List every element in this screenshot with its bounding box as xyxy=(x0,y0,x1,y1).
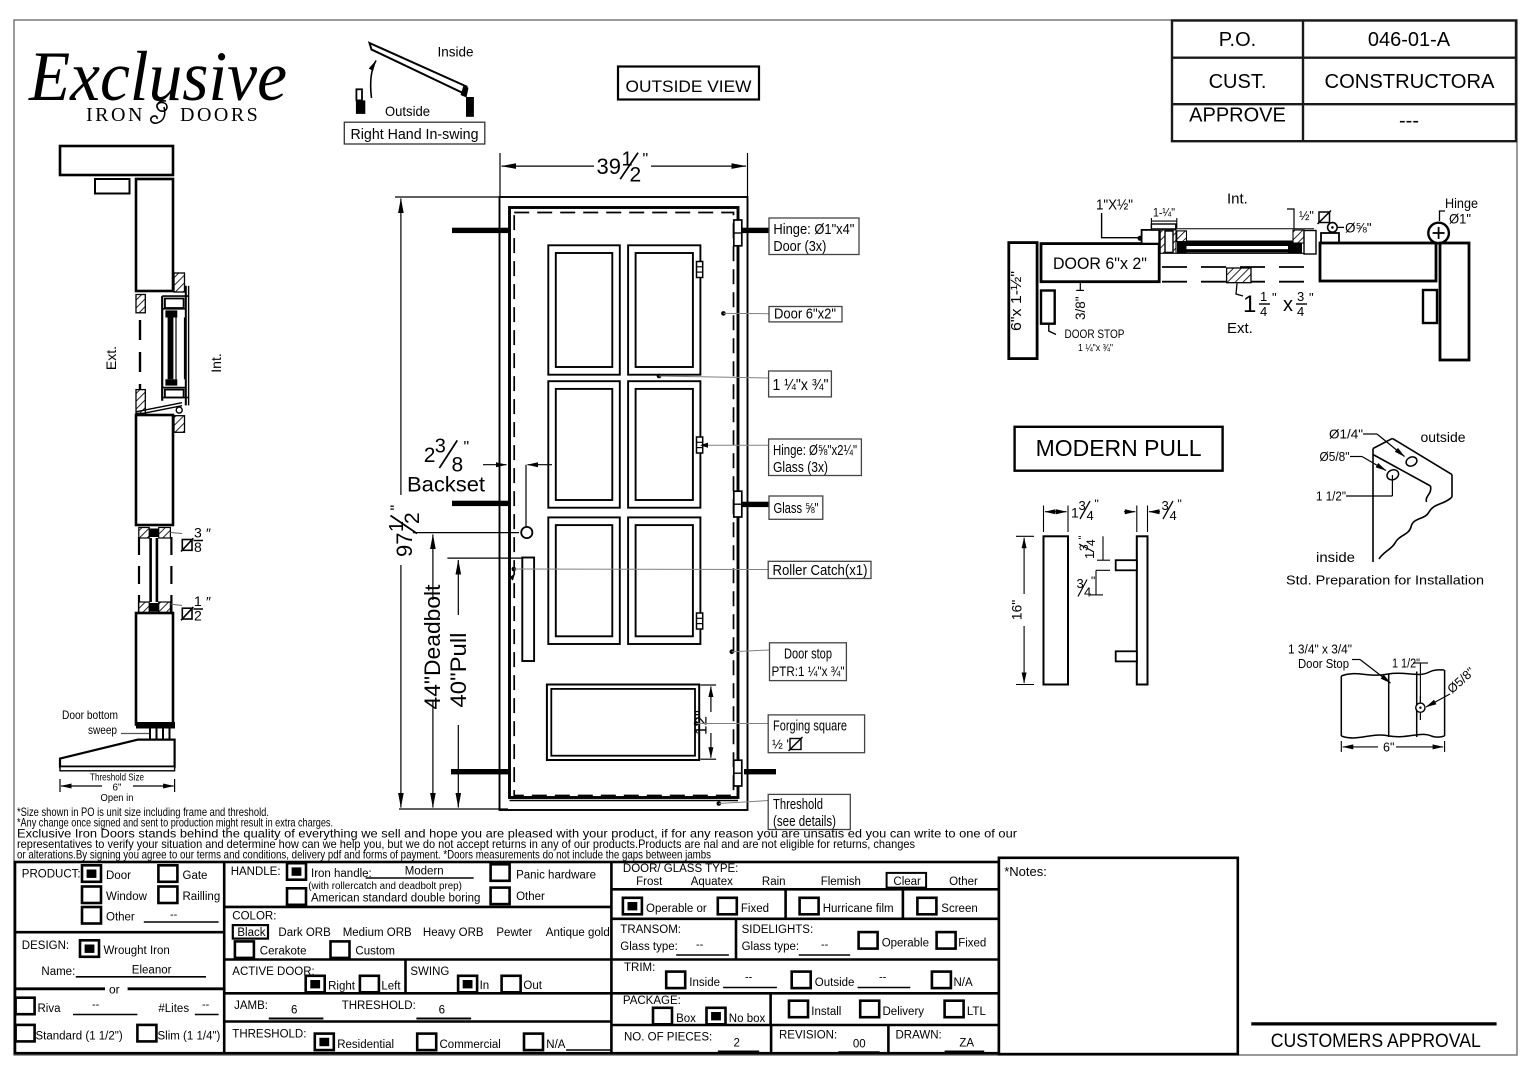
svg-text:6"x 1-½": 6"x 1-½" xyxy=(1008,271,1025,331)
svg-text:1 1/2": 1 1/2" xyxy=(1316,489,1346,504)
svg-text:1: 1 xyxy=(1243,291,1256,318)
svg-text:": " xyxy=(643,151,649,168)
svg-text:inside: inside xyxy=(1316,549,1355,565)
svg-text:97: 97 xyxy=(392,533,417,557)
svg-text:PTR:1 ¼"x ¾": PTR:1 ¼"x ¾" xyxy=(772,663,845,679)
svg-text:Heavy ORB: Heavy ORB xyxy=(423,927,484,939)
svg-text:DOORS: DOORS xyxy=(180,104,260,126)
svg-text:2: 2 xyxy=(401,512,424,524)
svg-text:1: 1 xyxy=(1260,289,1267,304)
svg-text:1: 1 xyxy=(1082,552,1097,559)
svg-text:": " xyxy=(389,505,406,511)
svg-text:8: 8 xyxy=(194,539,202,555)
svg-text:CUST.: CUST. xyxy=(1209,71,1267,93)
svg-text:--: -- xyxy=(170,909,178,921)
svg-text:NO. OF PIECES:: NO. OF PIECES: xyxy=(624,1031,712,1043)
svg-text:39: 39 xyxy=(597,154,621,179)
svg-text:APPROVE: APPROVE xyxy=(1189,105,1286,127)
svg-text:3: 3 xyxy=(435,436,446,458)
svg-text:6: 6 xyxy=(439,1005,445,1017)
svg-text:Screen: Screen xyxy=(941,903,977,915)
svg-text:Forging square: Forging square xyxy=(773,718,847,735)
svg-text:THRESHOLD:: THRESHOLD: xyxy=(232,1029,306,1041)
svg-text:or alterations.By signing you: or alterations.By signing you agree to o… xyxy=(17,848,711,862)
svg-text:Hurricane film: Hurricane film xyxy=(823,903,894,915)
svg-text:3/8": 3/8" xyxy=(1073,296,1088,320)
svg-text:2: 2 xyxy=(734,1038,740,1050)
svg-text:1"X½": 1"X½" xyxy=(1096,198,1133,214)
svg-text:Int.: Int. xyxy=(208,353,224,372)
svg-text:REVISION:: REVISION: xyxy=(779,1029,837,1041)
svg-text:Door 6"x2": Door 6"x2" xyxy=(774,306,836,323)
svg-text:or: or xyxy=(109,982,120,996)
svg-text:In: In xyxy=(480,980,490,992)
svg-text:Residential: Residential xyxy=(337,1039,394,1051)
svg-text:": " xyxy=(1178,497,1182,511)
svg-text:THRESHOLD:: THRESHOLD: xyxy=(342,1000,416,1012)
svg-text:Glass (3x): Glass (3x) xyxy=(773,459,828,476)
svg-text:IRON: IRON xyxy=(86,104,145,126)
svg-text:Glass ⅝": Glass ⅝" xyxy=(774,500,819,517)
svg-text:Outside: Outside xyxy=(385,103,430,119)
svg-text:″: ″ xyxy=(206,594,211,610)
svg-text:--: -- xyxy=(821,939,829,951)
svg-text:00: 00 xyxy=(853,1038,866,1050)
svg-text:Black: Black xyxy=(237,927,265,939)
svg-text:": " xyxy=(1309,290,1314,305)
svg-text:JAMB:: JAMB: xyxy=(234,1000,268,1012)
svg-text:PACKAGE:: PACKAGE: xyxy=(623,995,681,1007)
svg-text:Riva: Riva xyxy=(38,1003,62,1015)
svg-text:Panic hardware: Panic hardware xyxy=(516,869,596,881)
svg-text:Ø5/8": Ø5/8" xyxy=(1320,449,1350,464)
svg-text:Delivery: Delivery xyxy=(883,1006,925,1018)
svg-text:Flemish: Flemish xyxy=(821,876,861,888)
svg-text:--: -- xyxy=(879,972,887,984)
svg-text:ZA: ZA xyxy=(959,1038,974,1050)
svg-text:Operable: Operable xyxy=(882,937,929,949)
svg-text:Hinge: Hinge xyxy=(1445,195,1478,211)
svg-text:Backset: Backset xyxy=(407,473,485,497)
svg-text:DOOR/ GLASS TYPE:: DOOR/ GLASS TYPE: xyxy=(623,863,738,875)
svg-text:Frost: Frost xyxy=(636,876,663,888)
svg-text:Custom: Custom xyxy=(355,946,395,958)
svg-text:Other: Other xyxy=(949,876,978,888)
svg-text:Pewter: Pewter xyxy=(496,927,532,939)
svg-text:CUSTOMERS APPROVAL: CUSTOMERS APPROVAL xyxy=(1271,1031,1481,1052)
svg-text:TRANSOM:: TRANSOM: xyxy=(620,924,681,936)
svg-text:Ext.: Ext. xyxy=(1227,320,1253,337)
svg-text:Rain: Rain xyxy=(762,876,786,888)
svg-text:Other: Other xyxy=(106,912,135,924)
svg-text:½": ½" xyxy=(1299,209,1314,223)
svg-text:1 3/4" x 3/4": 1 3/4" x 3/4" xyxy=(1288,642,1352,657)
svg-text:DOOR 6"x 2": DOOR 6"x 2" xyxy=(1053,255,1147,273)
svg-text:046-01-A: 046-01-A xyxy=(1368,29,1451,51)
svg-text:DRAWN:: DRAWN: xyxy=(896,1029,942,1041)
svg-text:Commercial: Commercial xyxy=(440,1039,501,1051)
svg-text:Window: Window xyxy=(106,891,148,903)
svg-text:--: -- xyxy=(92,999,100,1011)
svg-text:Clear: Clear xyxy=(893,876,921,888)
svg-text:Other: Other xyxy=(516,891,545,903)
svg-text:Ø1/4": Ø1/4" xyxy=(1329,427,1363,442)
svg-text:Operable or: Operable or xyxy=(646,903,707,915)
svg-text:Hinge: Ø1"x4": Hinge: Ø1"x4" xyxy=(773,221,854,238)
svg-text:#Lites: #Lites xyxy=(158,1003,189,1015)
svg-text:6: 6 xyxy=(291,1005,297,1017)
svg-text:″: ″ xyxy=(206,525,211,541)
svg-text:2: 2 xyxy=(630,164,642,187)
svg-text:COLOR:: COLOR: xyxy=(232,911,276,923)
svg-text:Glass type:: Glass type: xyxy=(742,941,800,953)
svg-text:4: 4 xyxy=(1087,508,1094,523)
svg-text:Door: Door xyxy=(106,870,131,882)
svg-text:1 ¼"x ¾": 1 ¼"x ¾" xyxy=(773,377,829,394)
svg-text:": " xyxy=(1091,574,1095,588)
svg-text:TRIM:: TRIM: xyxy=(624,962,655,974)
svg-text:(with rollercatch and deadbolt: (with rollercatch and deadbolt prep) xyxy=(308,881,462,892)
svg-text:Threshold: Threshold xyxy=(773,796,823,813)
svg-text:Box: Box xyxy=(676,1013,696,1025)
svg-text:--: -- xyxy=(745,972,753,984)
svg-text:Gate: Gate xyxy=(183,870,208,882)
svg-text:Aquatex: Aquatex xyxy=(691,876,733,888)
svg-text:Out: Out xyxy=(523,980,542,992)
svg-text:Door Stop: Door Stop xyxy=(1298,656,1349,671)
svg-text:HANDLE:: HANDLE: xyxy=(231,866,281,878)
svg-text:": " xyxy=(464,439,470,456)
svg-text:Install: Install xyxy=(811,1006,841,1018)
svg-text:Outside: Outside xyxy=(815,977,855,989)
svg-text:Roller Catch(x1): Roller Catch(x1) xyxy=(773,562,868,579)
svg-text:Standard (1 1/2"): Standard (1 1/2") xyxy=(36,1030,123,1042)
svg-text:N/A: N/A xyxy=(954,977,974,989)
svg-text:Hinge: Ø⅝"x2¼": Hinge: Ø⅝"x2¼" xyxy=(773,442,857,459)
svg-text:sweep: sweep xyxy=(88,723,117,737)
svg-text:N/A: N/A xyxy=(546,1039,566,1051)
svg-text:1 ¼"x ¾": 1 ¼"x ¾" xyxy=(1078,342,1113,354)
svg-text:Inside: Inside xyxy=(438,44,474,60)
svg-text:16": 16" xyxy=(1009,600,1025,621)
svg-text:Right Hand In-swing: Right Hand In-swing xyxy=(351,126,479,143)
svg-text:Ø1": Ø1" xyxy=(1449,211,1471,227)
svg-text:---: --- xyxy=(1399,110,1419,132)
svg-text:--: -- xyxy=(696,939,704,951)
svg-text:Left: Left xyxy=(381,981,401,993)
svg-text:Antique gold: Antique gold xyxy=(546,927,610,939)
svg-text:Wrought Iron: Wrought Iron xyxy=(104,945,170,957)
svg-text:Fixed: Fixed xyxy=(958,937,986,949)
svg-text:American standard double borin: American standard double boring xyxy=(311,893,480,905)
svg-text:Door bottom: Door bottom xyxy=(62,708,118,722)
svg-text:1-¼": 1-¼" xyxy=(1153,206,1175,220)
svg-text:Int.: Int. xyxy=(1227,191,1248,208)
svg-text:Eleanor: Eleanor xyxy=(132,965,172,977)
svg-text:Cerakote: Cerakote xyxy=(260,946,307,958)
svg-text:ACTIVE DOOR:: ACTIVE DOOR: xyxy=(232,966,314,978)
svg-text:3: 3 xyxy=(1297,289,1304,304)
svg-text:SWING: SWING xyxy=(410,966,449,978)
svg-text:Medium ORB: Medium ORB xyxy=(343,927,412,939)
svg-text:DOOR STOP: DOOR STOP xyxy=(1065,327,1125,341)
svg-text:Iron handle:: Iron handle: xyxy=(311,868,372,880)
svg-text:No box: No box xyxy=(729,1013,766,1025)
svg-text:Inside: Inside xyxy=(689,977,720,989)
svg-text:P.O.: P.O. xyxy=(1219,29,1256,51)
svg-text:MODERN PULL: MODERN PULL xyxy=(1036,435,1202,461)
svg-text:Std. Preparation for Installat: Std. Preparation for Installation xyxy=(1286,573,1484,588)
svg-text:PRODUCT:: PRODUCT: xyxy=(22,869,81,881)
svg-text:Railling: Railling xyxy=(183,891,221,903)
svg-text:DESIGN:: DESIGN: xyxy=(22,940,69,952)
svg-text:Dark ORB: Dark ORB xyxy=(278,927,331,939)
svg-text:": " xyxy=(1095,497,1099,511)
svg-text:OUTSIDE VIEW: OUTSIDE VIEW xyxy=(626,77,752,96)
svg-text:Door stop: Door stop xyxy=(784,646,832,663)
svg-text:Modern: Modern xyxy=(405,866,444,878)
svg-text:Glass type:: Glass type: xyxy=(620,941,678,953)
svg-text:½ ": ½ " xyxy=(772,737,791,752)
svg-text:Open in: Open in xyxy=(101,793,134,804)
svg-text:Slim (1 1/4"): Slim (1 1/4") xyxy=(158,1030,221,1042)
svg-text:": " xyxy=(1077,536,1089,540)
svg-text:44"Deadbolt: 44"Deadbolt xyxy=(420,585,445,710)
svg-text:40"Pull: 40"Pull xyxy=(446,633,471,708)
svg-text:--: -- xyxy=(202,999,210,1011)
svg-text:outside: outside xyxy=(1421,429,1466,445)
svg-text:Fixed: Fixed xyxy=(741,903,769,915)
svg-text:2: 2 xyxy=(194,608,202,624)
svg-text:": " xyxy=(1272,290,1277,305)
svg-text:*Notes:: *Notes: xyxy=(1004,864,1047,879)
svg-text:4: 4 xyxy=(1297,304,1304,319)
svg-text:4: 4 xyxy=(1260,304,1267,319)
svg-text:x: x xyxy=(1283,294,1293,316)
svg-text:Name:: Name: xyxy=(41,966,75,978)
svg-text:Door (3x): Door (3x) xyxy=(773,238,826,255)
svg-text:LTL: LTL xyxy=(967,1006,987,1018)
svg-text:SIDELIGHTS:: SIDELIGHTS: xyxy=(742,924,814,936)
svg-text:6": 6" xyxy=(1383,741,1394,755)
svg-text:Ø⅝": Ø⅝" xyxy=(1345,221,1372,236)
svg-text:CONSTRUCTORA: CONSTRUCTORA xyxy=(1325,71,1496,93)
svg-text:Ext.: Ext. xyxy=(103,346,119,370)
svg-text:4: 4 xyxy=(1170,508,1177,523)
svg-text:6": 6" xyxy=(113,783,122,794)
svg-text:2: 2 xyxy=(424,444,436,467)
svg-text:Right: Right xyxy=(328,981,356,993)
